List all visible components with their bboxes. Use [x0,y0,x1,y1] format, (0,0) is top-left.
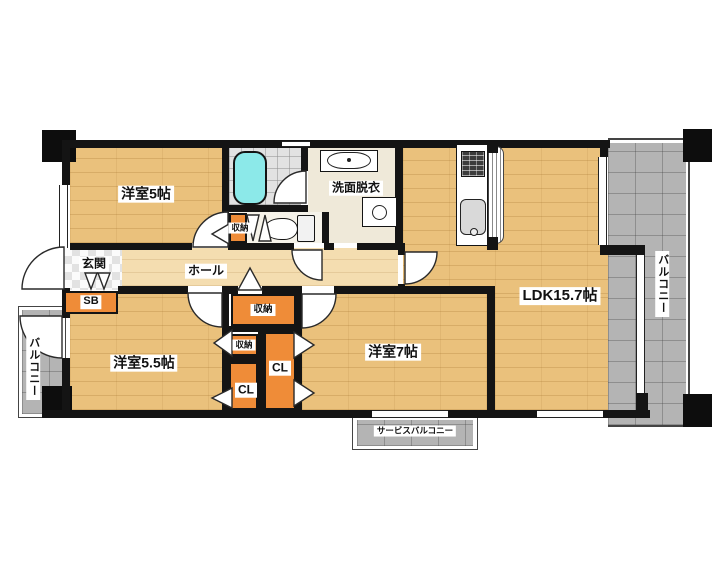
label-shoe-box: SB [80,295,101,309]
room-label-hall: ホール [185,264,227,279]
closet-door-triangle [212,388,232,408]
closet-door-triangle [214,330,232,356]
folding-door-entrance [85,273,97,289]
folding-door-toilet [259,215,271,241]
label-storage-top: 収納 [250,304,275,316]
door-arc-toilet [292,250,322,280]
door-arc-bathroom [274,171,306,203]
door-arc-entrance [22,247,64,289]
label-storage-left: 収納 [232,340,255,351]
room-label-washroom: 洗面脱衣 [329,181,383,196]
label-balcony-right: バルコニー [655,251,669,317]
room-label-bedroom-5: 洋室5帖 [118,186,174,203]
door-arc-ldk [405,252,437,284]
label-service-balcony: サービスバルコニー [374,426,456,437]
door-arc-bedroom-5-5 [188,293,222,327]
door-swing-overlay [0,0,720,576]
closet-door-triangle [294,380,314,406]
room-label-ldk: LDK15.7帖 [519,287,600,305]
label-wc-storage: 収納 [228,223,251,234]
room-label-bedroom-7: 洋室7帖 [365,344,421,361]
label-balcony-left: バルコニー [26,334,40,400]
label-closet-right: CL [269,361,291,376]
folding-door-entrance [98,273,110,289]
closet-door-triangle [238,268,262,290]
label-closet-left: CL [235,383,257,398]
floorplan: 洋室5帖 洗面脱衣 LDK15.7帖 ホール 玄関 SB 収納 収納 収納 CL… [0,0,720,576]
room-label-entrance: 玄関 [79,257,109,272]
closet-door-triangle [294,332,314,358]
door-arc-bedroom-7 [302,294,336,328]
room-label-bedroom-5-5: 洋室5.5帖 [110,355,177,372]
